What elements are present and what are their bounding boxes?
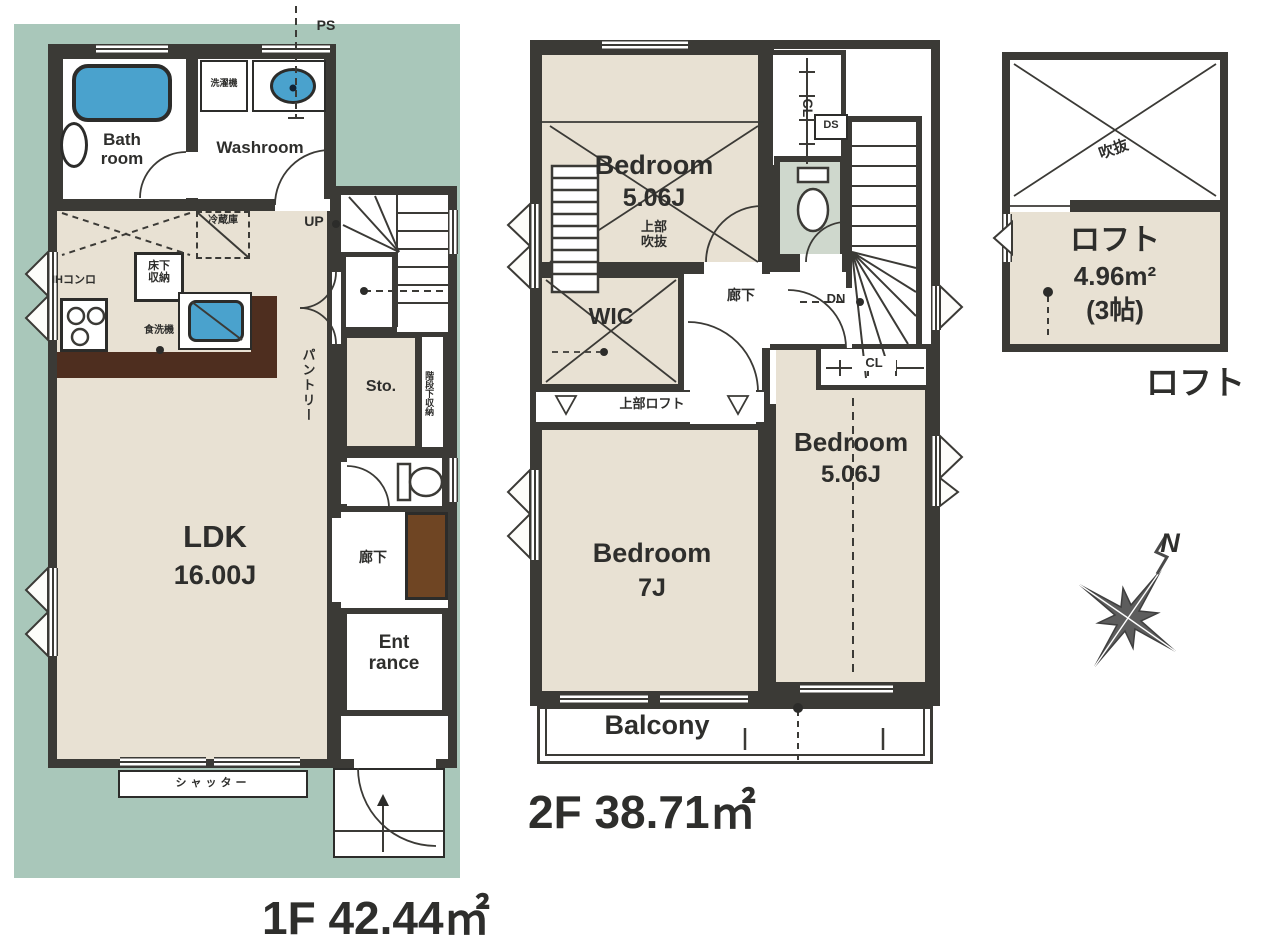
kitchen-sink — [188, 300, 244, 342]
wall-loft-divider — [1070, 200, 1220, 212]
closet-a-label: CL — [799, 78, 815, 138]
ih-stove-label: IHコンロ — [52, 274, 140, 286]
window-bedroom-b-balcony-2 — [660, 694, 748, 704]
ldk-size-label: 16.00J — [140, 560, 290, 590]
bedroom-c-size-label: 5.06J — [772, 462, 930, 489]
ldk-label: LDK — [140, 520, 290, 555]
window-bedroom-b-left — [530, 470, 540, 560]
dishwasher-label: 食洗機 — [134, 325, 184, 336]
window-ldk-bottom-2 — [214, 757, 300, 767]
loft-tatami-label: (3帖) — [1040, 296, 1190, 325]
window-ldk-bottom-1 — [120, 757, 206, 767]
duct-space-label: DS — [814, 119, 848, 131]
storage-label: Sto. — [342, 378, 420, 396]
loft-caption: ロフト — [1146, 356, 1245, 404]
door-gap-front — [354, 757, 436, 768]
door-gap-bath — [186, 152, 198, 198]
kitchen-counter-horizontal — [57, 352, 277, 378]
balcony-label: Balcony — [572, 710, 742, 740]
up-label: UP — [296, 214, 332, 230]
hallway-2f-label: 廊下 — [706, 288, 776, 304]
closet-b-label: CL — [852, 356, 896, 371]
bathtub — [72, 64, 172, 122]
bedroom-a-size-label: 5.06J — [558, 184, 750, 212]
loft-name-label: ロフト — [1040, 224, 1190, 258]
washer-label: 洗濯機 — [200, 78, 248, 88]
window-ldk-left — [48, 568, 58, 656]
bathroom-label: Bath room — [72, 130, 172, 168]
ih-stove — [60, 298, 108, 352]
door-gap-washroom — [275, 199, 330, 211]
window-loft-left — [1002, 214, 1012, 262]
window-toilet-right — [448, 458, 458, 502]
window-washroom-top — [262, 44, 330, 54]
entrance-label: Ent rance — [352, 632, 436, 675]
window-stairs-2f-right — [931, 286, 941, 330]
bedroom-c — [770, 344, 931, 688]
toilet-1f — [341, 452, 448, 512]
shoe-cabinet — [405, 512, 448, 600]
floor2-caption: 2F 38.71㎡ — [528, 776, 756, 842]
loft-above-label: 上部ロフト — [596, 397, 708, 412]
underfloor-storage-label: 床下 収納 — [134, 260, 184, 285]
bedroom-c-label: Bedroom — [772, 428, 930, 457]
shutter-label: シャッター — [120, 777, 306, 789]
entrance-porch-steps — [333, 768, 445, 858]
kitchen-counter-vertical — [251, 296, 277, 378]
door-gap-bedroom-c — [770, 350, 776, 404]
bedroom-a-note-label: 上部 吹抜 — [608, 220, 700, 249]
under-stairs-storage-label: 階段下収納 — [424, 340, 434, 446]
window-bedroom-a-top — [602, 40, 688, 50]
washroom-label: Washroom — [198, 138, 322, 157]
floorplan-sheet: PS 洗濯機 Bath room Washroom 冷蔵庫 床下 収納 IHコン… — [0, 0, 1280, 951]
bedroom-a-label: Bedroom — [558, 150, 750, 180]
compass-north-label: N — [1150, 528, 1190, 558]
door-gap-toilet-2f — [800, 254, 842, 272]
window-stairs-right — [448, 210, 458, 254]
fridge-label: 冷蔵庫 — [194, 215, 252, 226]
toilet-2f — [774, 156, 846, 260]
loft-area-label: 4.96m² — [1040, 262, 1190, 291]
down-label: DN — [816, 292, 856, 307]
ps-label: PS — [306, 18, 346, 34]
pantry-label: パントリー — [300, 310, 315, 460]
floor1-caption: 1F 42.44㎡ — [262, 882, 490, 948]
door-gap-bedroom-a — [704, 262, 762, 274]
window-bathroom-top — [96, 44, 168, 54]
window-bedroom-b-balcony-1 — [560, 694, 648, 704]
wic-label: WIC — [556, 304, 666, 330]
window-kitchen-left — [48, 252, 58, 340]
wash-basin — [270, 68, 316, 104]
door-gap-pantry — [332, 272, 341, 344]
bedroom-b-label: Bedroom — [556, 538, 748, 568]
window-bedroom-c-balcony — [800, 684, 893, 694]
hallway-1f-label: 廊下 — [338, 550, 408, 566]
door-gap-toilet-1f — [341, 462, 347, 504]
window-bedroom-c-right — [931, 436, 941, 506]
wic — [536, 272, 684, 390]
window-bedroom-a-left — [530, 204, 540, 288]
stair-landing-closet — [341, 252, 397, 332]
bedroom-b-size-label: 7J — [556, 574, 748, 602]
loft-void — [1010, 60, 1220, 200]
